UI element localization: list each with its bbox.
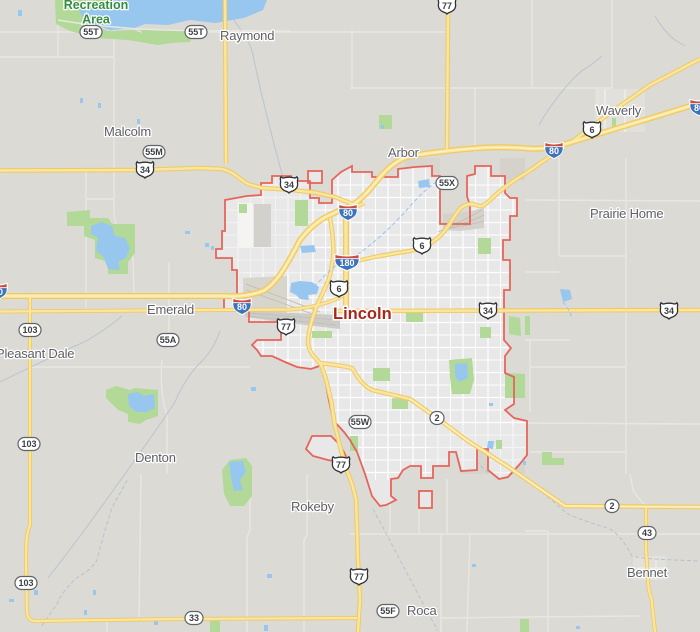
svg-text:103: 103 [22, 325, 37, 335]
svg-text:33: 33 [189, 613, 199, 623]
svg-text:2: 2 [609, 501, 614, 511]
svg-text:Arbor: Arbor [388, 145, 420, 160]
svg-text:180: 180 [339, 258, 354, 268]
svg-text:Emerald: Emerald [147, 302, 194, 317]
svg-text:55W: 55W [351, 417, 370, 427]
svg-text:34: 34 [664, 306, 674, 316]
svg-text:55M: 55M [145, 147, 163, 157]
svg-text:Malcolm: Malcolm [104, 124, 151, 139]
svg-text:103: 103 [21, 439, 36, 449]
svg-text:Bennet: Bennet [627, 565, 668, 580]
svg-text:77: 77 [354, 572, 364, 582]
svg-text:Recreation: Recreation [64, 0, 129, 12]
svg-text:80: 80 [343, 208, 353, 218]
svg-text:6: 6 [336, 284, 341, 294]
svg-text:2: 2 [434, 413, 439, 423]
svg-text:103: 103 [18, 578, 33, 588]
svg-text:55A: 55A [160, 335, 177, 345]
svg-text:34: 34 [284, 180, 294, 190]
svg-text:Pleasant Dale: Pleasant Dale [0, 346, 74, 361]
svg-text:55X: 55X [439, 178, 455, 188]
svg-text:Roca: Roca [407, 603, 438, 618]
svg-text:Raymond: Raymond [220, 28, 274, 43]
svg-text:77: 77 [442, 1, 452, 11]
svg-text:Area: Area [82, 13, 111, 27]
svg-text:80: 80 [694, 103, 700, 113]
svg-text:Lincoln: Lincoln [333, 305, 392, 323]
svg-text:80: 80 [237, 302, 247, 312]
svg-text:6: 6 [589, 125, 594, 135]
svg-text:80: 80 [0, 287, 3, 297]
svg-text:Denton: Denton [135, 450, 176, 465]
svg-text:80: 80 [549, 146, 559, 156]
svg-text:34: 34 [140, 165, 150, 175]
svg-text:77: 77 [281, 322, 291, 332]
svg-text:43: 43 [642, 528, 652, 538]
svg-text:55T: 55T [188, 27, 204, 37]
svg-text:6: 6 [419, 241, 424, 251]
svg-text:34: 34 [483, 306, 493, 316]
svg-text:Waverly: Waverly [596, 103, 642, 118]
svg-text:Rokeby: Rokeby [291, 499, 335, 514]
svg-text:55T: 55T [83, 27, 99, 37]
svg-text:55F: 55F [380, 606, 396, 616]
svg-text:Prairie Home: Prairie Home [590, 206, 663, 221]
svg-text:77: 77 [336, 460, 346, 470]
